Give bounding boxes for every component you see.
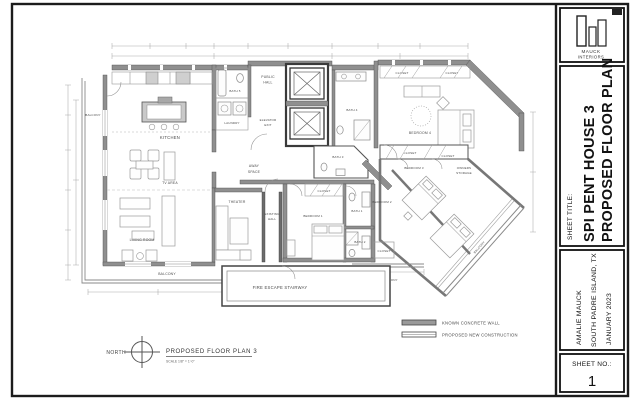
- info-box: AMALIE MAUCK SOUTH PADRE ISLAND, TX JANU…: [560, 250, 624, 350]
- bath5-label: BATH 5: [229, 89, 240, 93]
- balcony-bottom-label: BALCONY: [158, 272, 176, 276]
- bedroom1-label: BEDROOM 1: [303, 214, 323, 218]
- closet-lower-label: CLOSET: [378, 249, 391, 253]
- fire-escape-label: FIRE ESCAPE STAIRWAY: [253, 285, 308, 290]
- elevator-exit-label-2: EXIT: [264, 123, 271, 127]
- title-block: MAUCK INTERIORS SHEET TITLE: SPI PENT HO…: [560, 8, 624, 392]
- sheet-title-box: SHEET TITLE: SPI PENT HOUSE 3 PROPOSED F…: [560, 58, 624, 246]
- legend-concrete-swatch: [402, 320, 436, 325]
- owners-storage-label-2: STORAGE: [456, 171, 472, 175]
- laundry-label: LAUNDRY: [224, 121, 239, 125]
- fire-escape: FIRE ESCAPE STAIRWAY: [222, 266, 390, 306]
- wing-closet-label-2: CLOSET: [442, 154, 455, 158]
- drawing-sheet: BALCONY BALCONY: [0, 0, 640, 400]
- location: SOUTH PADRE ISLAND, TX: [591, 253, 598, 347]
- floor-plan-sheet: BALCONY BALCONY: [0, 0, 640, 400]
- north-label: NORTH: [106, 350, 126, 356]
- balcony-left-label: BALCONY: [85, 113, 100, 117]
- legend-new-label: PROPOSED NEW CONSTRUCTION: [442, 333, 518, 338]
- logo-box: MAUCK INTERIORS: [560, 8, 624, 62]
- bed-bedroom1: [312, 224, 344, 260]
- living-room-label: LIVING ROOM: [130, 238, 155, 242]
- sheet-title-line2: PROPOSED FLOOR PLAN: [600, 58, 616, 242]
- logo-corner-mark: [612, 9, 622, 15]
- theater-label: THEATER: [229, 200, 246, 204]
- sheet-no-value: 1: [588, 373, 596, 390]
- bedroom4-closet-label-2: CLOSET: [446, 71, 459, 75]
- sheet-title-line1: SPI PENT HOUSE 3: [582, 105, 598, 242]
- elevator-exit-label-1: ELEVATOR: [260, 118, 277, 122]
- existing-hall-label-1: EXISTING: [264, 212, 280, 216]
- bath4-label: BATH 4: [346, 108, 357, 112]
- tv-area-label: TV AREA: [162, 181, 178, 185]
- owners-storage-label-1: OWNERS: [457, 166, 471, 170]
- bedroom1-closet-label: CLOSET: [318, 189, 331, 193]
- bath2-label: BATH 2: [354, 240, 365, 244]
- elevator-icon: [290, 68, 324, 99]
- date: JANUARY 2023: [606, 293, 613, 345]
- bedroom3-label: BEDROOM 3: [404, 166, 424, 170]
- bedroom2-label: BEDROOM 2: [372, 200, 392, 204]
- elevator-shafts: [286, 64, 328, 146]
- away-space-label-1: AWAY: [249, 164, 260, 168]
- public-hall-label-2: HALL: [263, 81, 272, 85]
- bedroom4-closet-label-1: CLOSET: [396, 71, 409, 75]
- plan-scale: SCALE 1/8" = 1'-0": [166, 360, 195, 364]
- bed-bedroom4: [438, 110, 474, 148]
- bath3-label: BATH 3: [332, 155, 343, 159]
- bedroom4-label: BEDROOM 4: [409, 131, 431, 135]
- bath1-label: BATH 1: [351, 209, 362, 213]
- author: AMALIE MAUCK: [576, 290, 583, 345]
- sheet-number-box: SHEET NO.: 1: [560, 354, 624, 392]
- elevator-icon: [290, 108, 324, 139]
- away-space-label-2: SPACE: [248, 170, 261, 174]
- wing-closet-label-1: CLOSET: [404, 151, 417, 155]
- kitchen-label: KITCHEN: [160, 135, 180, 140]
- public-hall-label-1: PUBLIC: [261, 75, 275, 79]
- logo-name: MAUCK: [581, 49, 601, 54]
- existing-hall-label-2: HALL: [268, 217, 276, 221]
- plan-title: PROPOSED FLOOR PLAN 3: [166, 349, 257, 355]
- sheet-no-label: SHEET NO.:: [572, 361, 612, 368]
- sheet-title-label: SHEET TITLE:: [567, 194, 574, 240]
- legend-concrete-label: KNOWN CONCRETE WALL: [442, 321, 500, 326]
